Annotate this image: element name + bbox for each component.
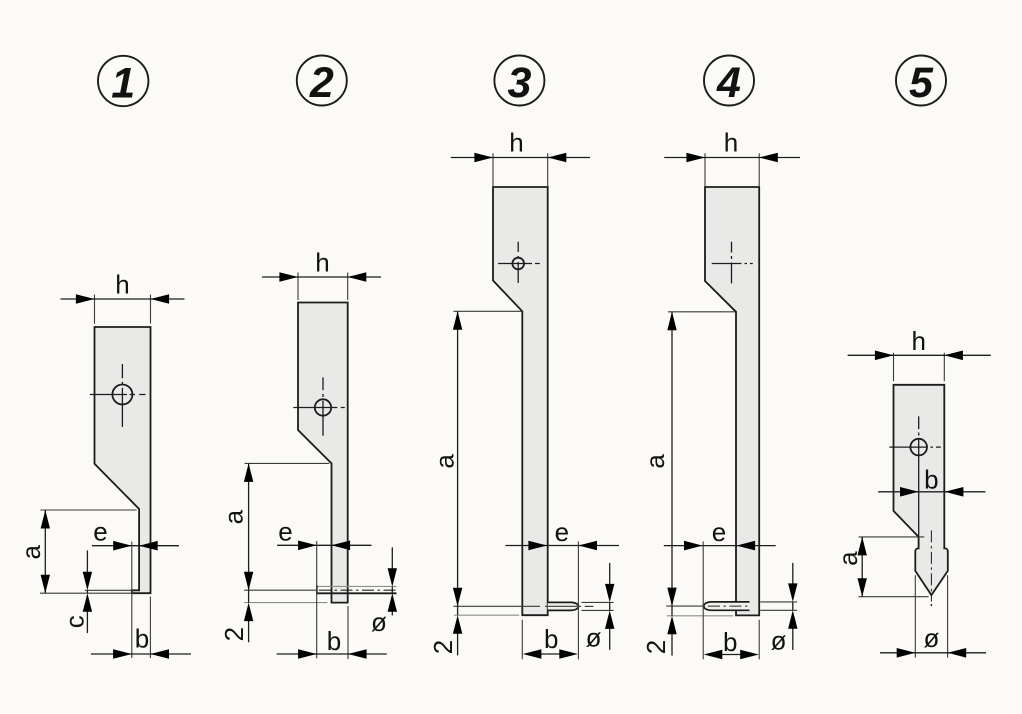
svg-text:a: a [833, 551, 863, 566]
svg-text:ø: ø [586, 623, 602, 653]
svg-text:ø: ø [771, 626, 787, 656]
svg-text:5: 5 [909, 59, 934, 107]
svg-text:h: h [115, 270, 129, 300]
svg-text:ø: ø [371, 607, 387, 637]
svg-text:2: 2 [309, 59, 334, 107]
svg-text:2: 2 [219, 627, 249, 641]
svg-text:b: b [723, 627, 737, 657]
svg-text:ø: ø [923, 623, 939, 653]
svg-text:c: c [60, 615, 90, 628]
svg-text:h: h [911, 326, 925, 356]
svg-text:4: 4 [716, 59, 741, 107]
svg-text:h: h [724, 128, 738, 158]
svg-text:a: a [16, 545, 46, 560]
svg-text:e: e [278, 517, 292, 547]
svg-text:h: h [509, 128, 523, 158]
svg-text:a: a [640, 454, 670, 469]
svg-text:a: a [430, 454, 460, 469]
svg-text:2: 2 [641, 640, 671, 654]
svg-text:b: b [924, 465, 938, 495]
svg-text:3: 3 [507, 59, 531, 107]
svg-text:1: 1 [111, 60, 135, 108]
svg-text:2: 2 [428, 640, 458, 654]
svg-text:e: e [93, 517, 107, 547]
svg-text:b: b [135, 624, 149, 654]
svg-text:a: a [219, 509, 249, 524]
svg-text:h: h [315, 248, 329, 278]
svg-text:e: e [712, 517, 726, 547]
svg-text:e: e [555, 517, 569, 547]
svg-text:b: b [544, 624, 558, 654]
svg-text:b: b [327, 626, 341, 656]
